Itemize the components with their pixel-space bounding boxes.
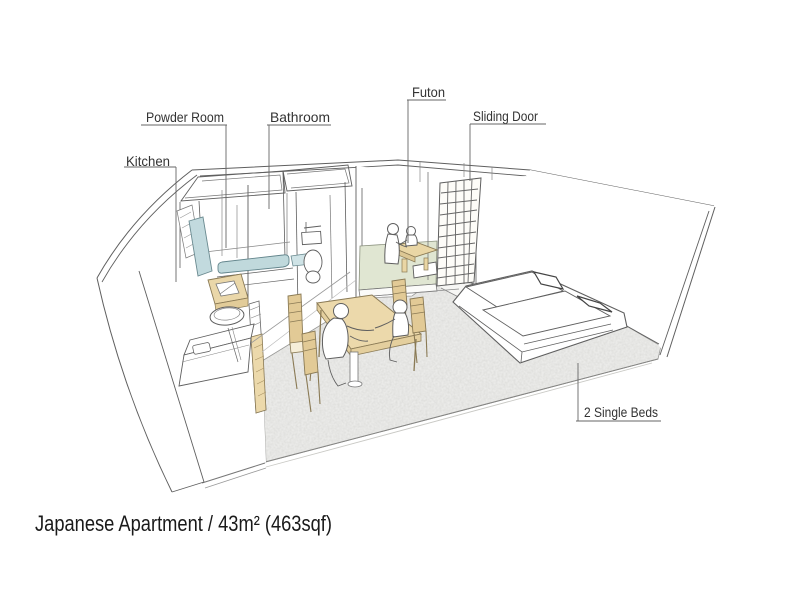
- svg-text:Futon: Futon: [412, 84, 445, 100]
- svg-text:Japanese Apartment / 43m² (463: Japanese Apartment / 43m² (463sqf): [35, 511, 332, 536]
- svg-text:Bathroom: Bathroom: [270, 109, 330, 125]
- svg-text:Powder Room: Powder Room: [146, 109, 224, 125]
- svg-text:2 Single Beds: 2 Single Beds: [584, 404, 658, 420]
- svg-text:Sliding Door: Sliding Door: [473, 108, 538, 124]
